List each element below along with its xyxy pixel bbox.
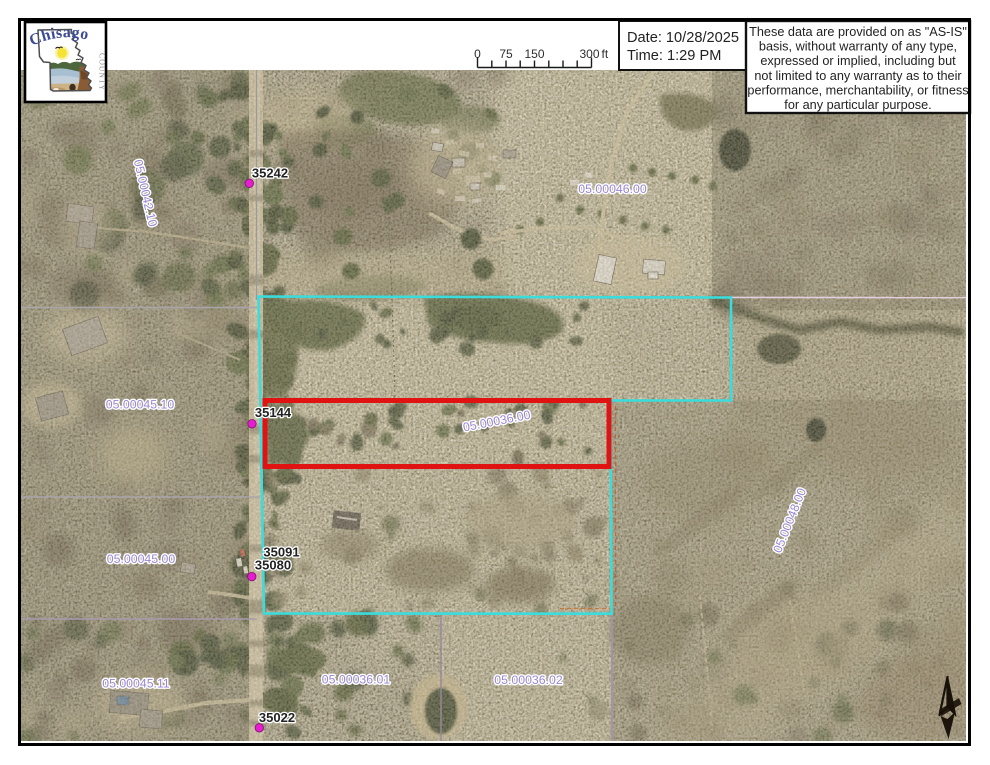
svg-text:05.00045.00: 05.00045.00 — [107, 552, 176, 566]
svg-text:05.00045.10: 05.00045.10 — [106, 398, 175, 412]
svg-text:0: 0 — [474, 47, 481, 61]
svg-text:35080: 35080 — [255, 557, 291, 572]
svg-text:Date: 10/28/2025: Date: 10/28/2025 — [627, 30, 739, 46]
svg-text:150: 150 — [524, 47, 544, 61]
svg-text:Time: 1:29 PM: Time: 1:29 PM — [627, 48, 721, 64]
svg-text:05.00046.00: 05.00046.00 — [578, 182, 647, 196]
svg-text:05.00036.02: 05.00036.02 — [494, 673, 563, 687]
svg-text:05.00045.11: 05.00045.11 — [102, 677, 170, 691]
svg-text:35022: 35022 — [259, 710, 295, 725]
svg-text:35242: 35242 — [252, 166, 288, 181]
svg-text:for any particular purpose.: for any particular purpose. — [784, 98, 931, 112]
svg-text:35144: 35144 — [255, 405, 292, 420]
svg-text:COUNTY: COUNTY — [98, 53, 107, 91]
svg-text:300: 300 — [579, 47, 599, 61]
svg-text:not limited to any warranty as: not limited to any warranty as to their — [754, 69, 962, 83]
svg-text:75: 75 — [499, 47, 513, 61]
svg-text:05.00036.01: 05.00036.01 — [322, 673, 391, 687]
svg-text:basis, without warranty of any: basis, without warranty of any type, — [759, 40, 957, 54]
svg-text:performance, merchantability,: performance, merchantability, or fitness — [747, 83, 968, 97]
svg-text:expressed or implied, includin: expressed or implied, including but — [760, 54, 956, 68]
svg-text:ft: ft — [602, 47, 609, 61]
svg-text:These data are provided on as: These data are provided on as "AS-IS" — [749, 25, 967, 39]
